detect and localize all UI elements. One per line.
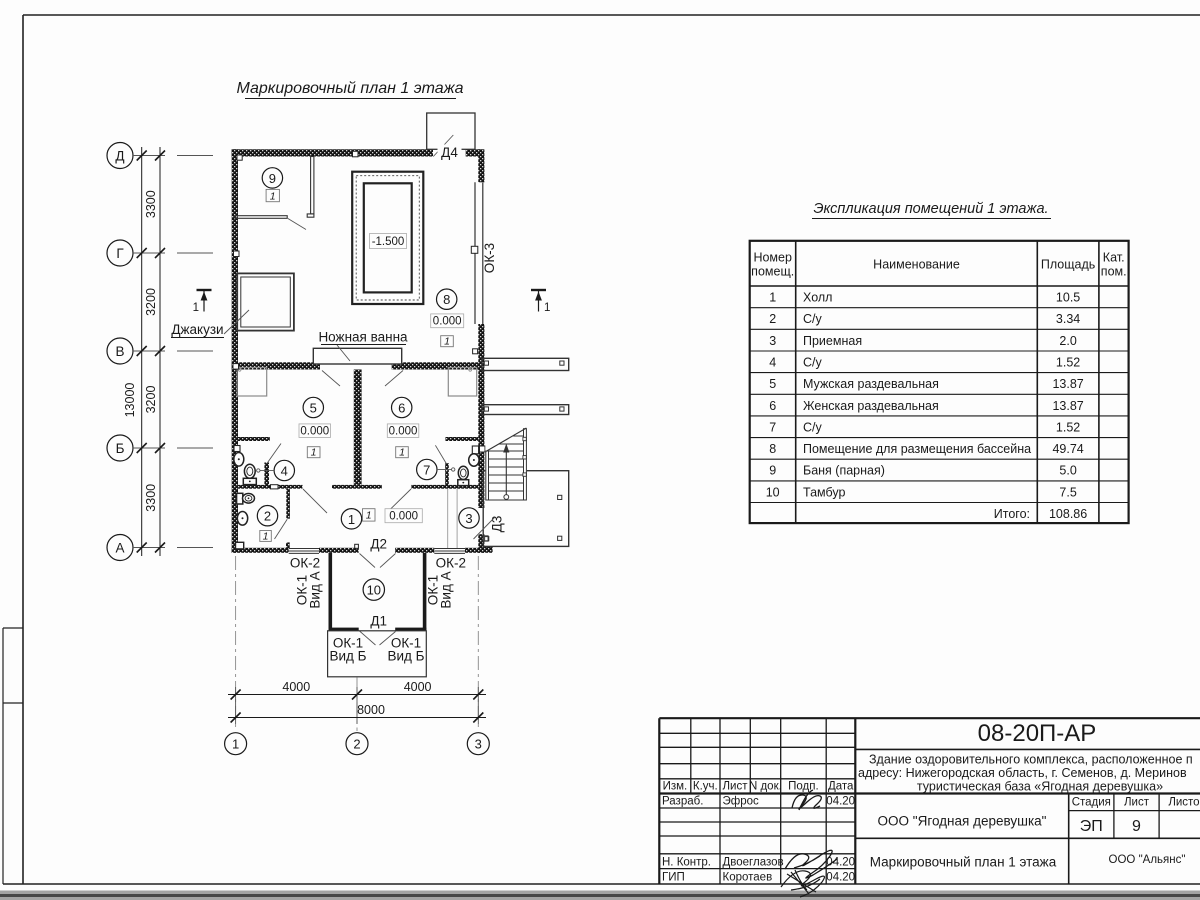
svg-text:Вид Б: Вид Б [387, 649, 424, 664]
svg-text:К.уч.: К.уч. [693, 781, 718, 793]
svg-text:0.000: 0.000 [300, 426, 329, 438]
svg-text:Дата: Дата [828, 781, 854, 793]
svg-text:8: 8 [769, 442, 776, 456]
svg-text:N док.: N док. [749, 781, 782, 793]
svg-text:13.87: 13.87 [1052, 399, 1083, 413]
svg-text:Д3: Д3 [490, 516, 505, 533]
svg-text:9: 9 [1132, 818, 1141, 835]
svg-text:8: 8 [443, 292, 450, 307]
svg-text:5: 5 [769, 377, 776, 391]
svg-text:Лист: Лист [723, 781, 749, 793]
svg-text:Наименование: Наименование [873, 258, 960, 272]
svg-text:1: 1 [263, 531, 269, 543]
svg-text:Д1: Д1 [370, 614, 387, 629]
svg-text:0.000: 0.000 [433, 316, 462, 328]
svg-text:13.87: 13.87 [1052, 377, 1083, 391]
svg-text:Мужская раздевальная: Мужская раздевальная [803, 377, 939, 391]
svg-text:5.0: 5.0 [1059, 464, 1076, 478]
svg-text:2: 2 [769, 312, 776, 326]
svg-text:С/у: С/у [803, 312, 823, 326]
svg-text:7: 7 [769, 420, 776, 434]
svg-text:2.0: 2.0 [1059, 334, 1076, 348]
svg-text:Приемная: Приемная [803, 334, 862, 348]
svg-text:пом.: пом. [1101, 265, 1127, 279]
svg-text:1: 1 [366, 510, 372, 522]
svg-text:1: 1 [444, 336, 450, 348]
svg-text:3: 3 [475, 736, 482, 751]
svg-text:Вид А: Вид А [308, 571, 323, 608]
svg-text:9: 9 [269, 171, 276, 186]
svg-text:108.86: 108.86 [1049, 507, 1087, 521]
svg-text:3300: 3300 [144, 190, 158, 218]
svg-text:4000: 4000 [404, 680, 432, 694]
svg-text:5: 5 [310, 401, 317, 416]
svg-text:0.000: 0.000 [389, 426, 418, 438]
svg-text:1: 1 [311, 447, 317, 459]
svg-text:1: 1 [544, 302, 550, 314]
svg-text:1: 1 [348, 512, 355, 527]
svg-text:Здание оздоровительного компле: Здание оздоровительного комплекса, распо… [869, 753, 1193, 767]
svg-text:Коротаев: Коротаев [723, 872, 773, 884]
svg-text:1: 1 [232, 736, 239, 751]
svg-text:Тамбур: Тамбур [803, 485, 845, 499]
svg-text:6: 6 [769, 399, 776, 413]
svg-text:04.20: 04.20 [826, 796, 855, 808]
svg-text:Площадь: Площадь [1041, 258, 1095, 272]
svg-text:Холл: Холл [803, 291, 832, 305]
svg-text:ОК-2: ОК-2 [436, 556, 466, 571]
svg-text:-1.500: -1.500 [372, 236, 405, 248]
svg-text:ОК-2: ОК-2 [290, 556, 320, 571]
svg-text:Маркировочный план 1 этажа: Маркировочный план 1 этажа [236, 80, 463, 97]
svg-text:ОК-3: ОК-3 [482, 243, 497, 273]
svg-text:помещ.: помещ. [751, 265, 794, 279]
svg-text:0.000: 0.000 [389, 511, 418, 523]
svg-text:Эфрос: Эфрос [723, 796, 760, 808]
svg-text:10: 10 [367, 583, 381, 598]
svg-text:49.74: 49.74 [1052, 442, 1083, 456]
svg-text:Экспликация помещений 1 этажа.: Экспликация помещений 1 этажа. [813, 201, 1048, 217]
svg-text:Подп.: Подп. [788, 781, 819, 793]
svg-text:Н. Контр.: Н. Контр. [662, 857, 711, 869]
svg-text:Номер: Номер [753, 251, 792, 265]
svg-text:1: 1 [399, 447, 405, 459]
svg-text:1: 1 [769, 291, 776, 305]
svg-text:Стадия: Стадия [1072, 797, 1111, 809]
svg-text:Ножная ванна: Ножная ванна [318, 330, 408, 345]
svg-text:ООО "Ягодная деревушка": ООО "Ягодная деревушка" [878, 814, 1047, 829]
svg-text:10: 10 [766, 485, 780, 499]
svg-text:Разраб.: Разраб. [662, 796, 703, 808]
svg-text:10.5: 10.5 [1056, 291, 1080, 305]
svg-text:4: 4 [769, 356, 776, 370]
svg-text:6: 6 [398, 401, 405, 416]
svg-text:8000: 8000 [357, 703, 385, 717]
svg-text:Изм.: Изм. [663, 781, 688, 793]
svg-text:Помещение для размещения бассе: Помещение для размещения бассейна [803, 442, 1031, 456]
svg-text:1: 1 [270, 190, 276, 202]
svg-text:Б: Б [116, 441, 125, 456]
svg-text:04.20: 04.20 [826, 872, 855, 884]
svg-text:08-20П-АР: 08-20П-АР [978, 720, 1097, 747]
svg-text:3: 3 [769, 334, 776, 348]
svg-text:3200: 3200 [144, 386, 158, 414]
svg-text:Итого:: Итого: [994, 507, 1030, 521]
svg-text:Лист: Лист [1124, 797, 1150, 809]
svg-text:адресу: Нижегородская область,: адресу: Нижегородская область, г. Семено… [858, 766, 1187, 780]
svg-text:1.52: 1.52 [1056, 420, 1080, 434]
svg-text:4: 4 [281, 464, 288, 479]
svg-text:Д: Д [115, 149, 124, 164]
svg-text:2: 2 [353, 736, 360, 751]
svg-text:7: 7 [423, 463, 430, 478]
svg-text:4000: 4000 [282, 680, 310, 694]
svg-text:2: 2 [264, 509, 271, 524]
svg-text:1: 1 [193, 302, 199, 314]
svg-text:Вид А: Вид А [439, 571, 454, 608]
svg-text:3200: 3200 [144, 288, 158, 316]
svg-text:ГИП: ГИП [662, 872, 685, 884]
svg-text:ООО "Альянс": ООО "Альянс" [1109, 854, 1186, 866]
svg-text:С/у: С/у [803, 420, 823, 434]
svg-text:С/у: С/у [803, 356, 823, 370]
svg-text:04.20: 04.20 [826, 857, 855, 869]
svg-text:3: 3 [465, 511, 472, 526]
svg-text:Баня (парная): Баня (парная) [803, 464, 885, 478]
svg-text:Г: Г [116, 246, 124, 261]
svg-text:Д4: Д4 [441, 145, 458, 160]
svg-text:Маркировочный план 1 этажа: Маркировочный план 1 этажа [870, 855, 1057, 870]
svg-text:ЭП: ЭП [1080, 818, 1103, 835]
svg-text:Двоеглазов: Двоеглазов [723, 857, 784, 869]
svg-text:1.52: 1.52 [1056, 356, 1080, 370]
svg-text:Вид Б: Вид Б [329, 649, 366, 664]
svg-text:3.34: 3.34 [1056, 312, 1080, 326]
svg-text:13000: 13000 [123, 383, 137, 418]
svg-text:А: А [115, 541, 124, 556]
svg-text:7.5: 7.5 [1059, 485, 1076, 499]
svg-text:В: В [115, 344, 124, 359]
svg-text:3300: 3300 [144, 484, 158, 512]
svg-text:Листов: Листов [1168, 797, 1200, 809]
svg-text:9: 9 [769, 464, 776, 478]
svg-text:туристическая база «Ягодная де: туристическая база «Ягодная деревушка» [917, 780, 1163, 794]
svg-text:Д2: Д2 [370, 537, 387, 552]
svg-text:Джакузи: Джакузи [171, 322, 223, 337]
svg-text:Женская раздевальная: Женская раздевальная [803, 399, 939, 413]
svg-text:Кат.: Кат. [1103, 251, 1125, 265]
